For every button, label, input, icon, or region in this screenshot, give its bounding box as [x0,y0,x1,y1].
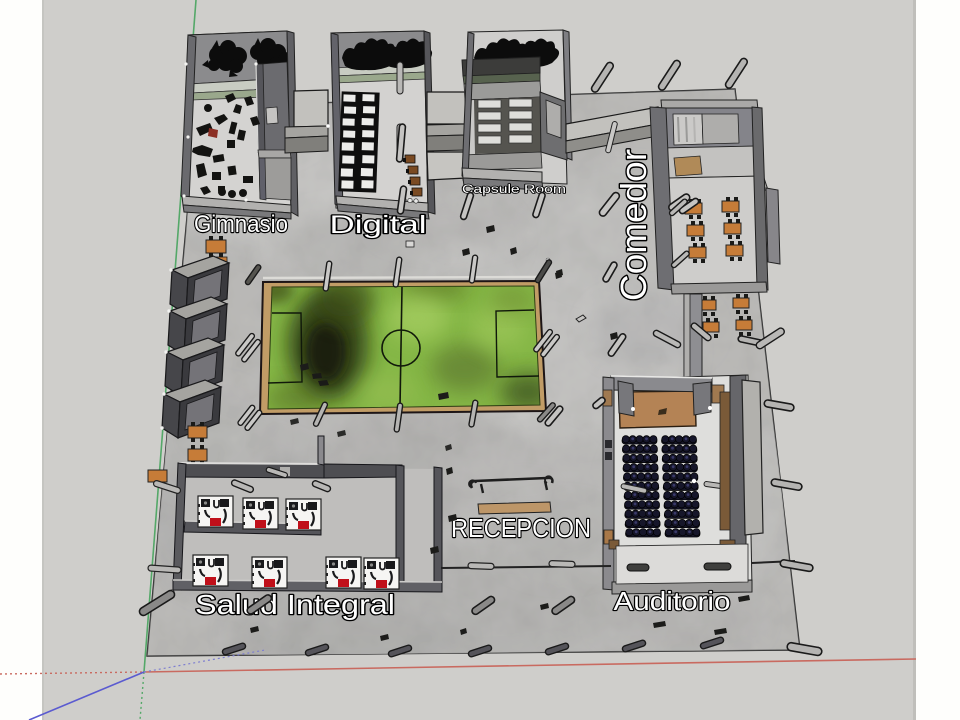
svg-text:Capsule Room: Capsule Room [462,184,566,196]
svg-text:Comedor: Comedor [613,149,654,301]
svg-text:Gimnasio: Gimnasio [194,211,288,238]
svg-text:Salud Integral: Salud Integral [195,589,395,620]
svg-text:RECEPCION: RECEPCION [451,513,591,543]
svg-text:Auditorio: Auditorio [614,586,731,616]
svg-text:Digital: Digital [330,211,427,239]
